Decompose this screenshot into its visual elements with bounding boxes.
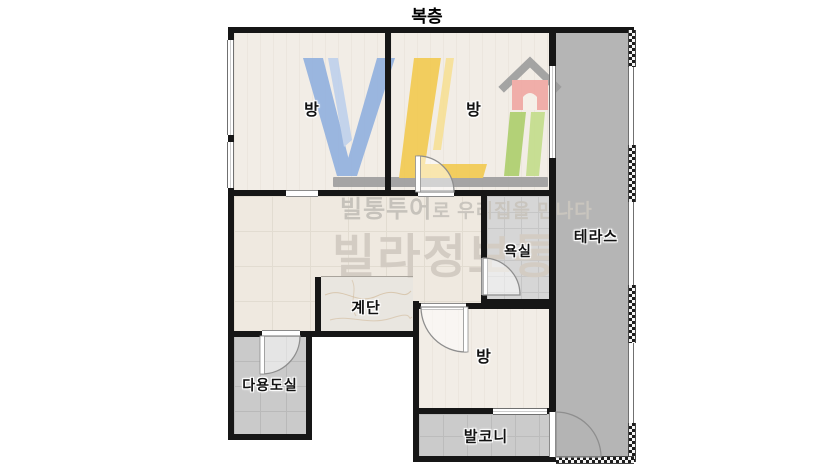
- floorplan-canvas: 복층 빌통투어로 우리집을 만나다 빌라정보통: [0, 0, 840, 472]
- door-leaf: [416, 156, 421, 192]
- label-terrace: 테라스: [574, 226, 618, 247]
- label-bedroom-top-left: 방: [304, 96, 320, 120]
- label-bathroom: 욕실: [504, 241, 532, 261]
- door-arc: [262, 336, 300, 374]
- door-arc: [556, 412, 601, 457]
- door-swings: [0, 0, 840, 472]
- plan-title: 복층: [411, 2, 442, 27]
- door-arc: [418, 156, 454, 192]
- label-bedroom-bottom: 방: [476, 343, 492, 367]
- door-arc: [483, 258, 520, 295]
- door-arc: [421, 307, 466, 352]
- door-leaf: [260, 336, 265, 374]
- label-balcony: 발코니: [464, 426, 508, 447]
- label-utility: 다용도실: [242, 375, 298, 395]
- label-stairs: 계단: [351, 297, 381, 318]
- door-leaf: [464, 307, 469, 352]
- label-bedroom-top-middle: 방: [466, 96, 482, 120]
